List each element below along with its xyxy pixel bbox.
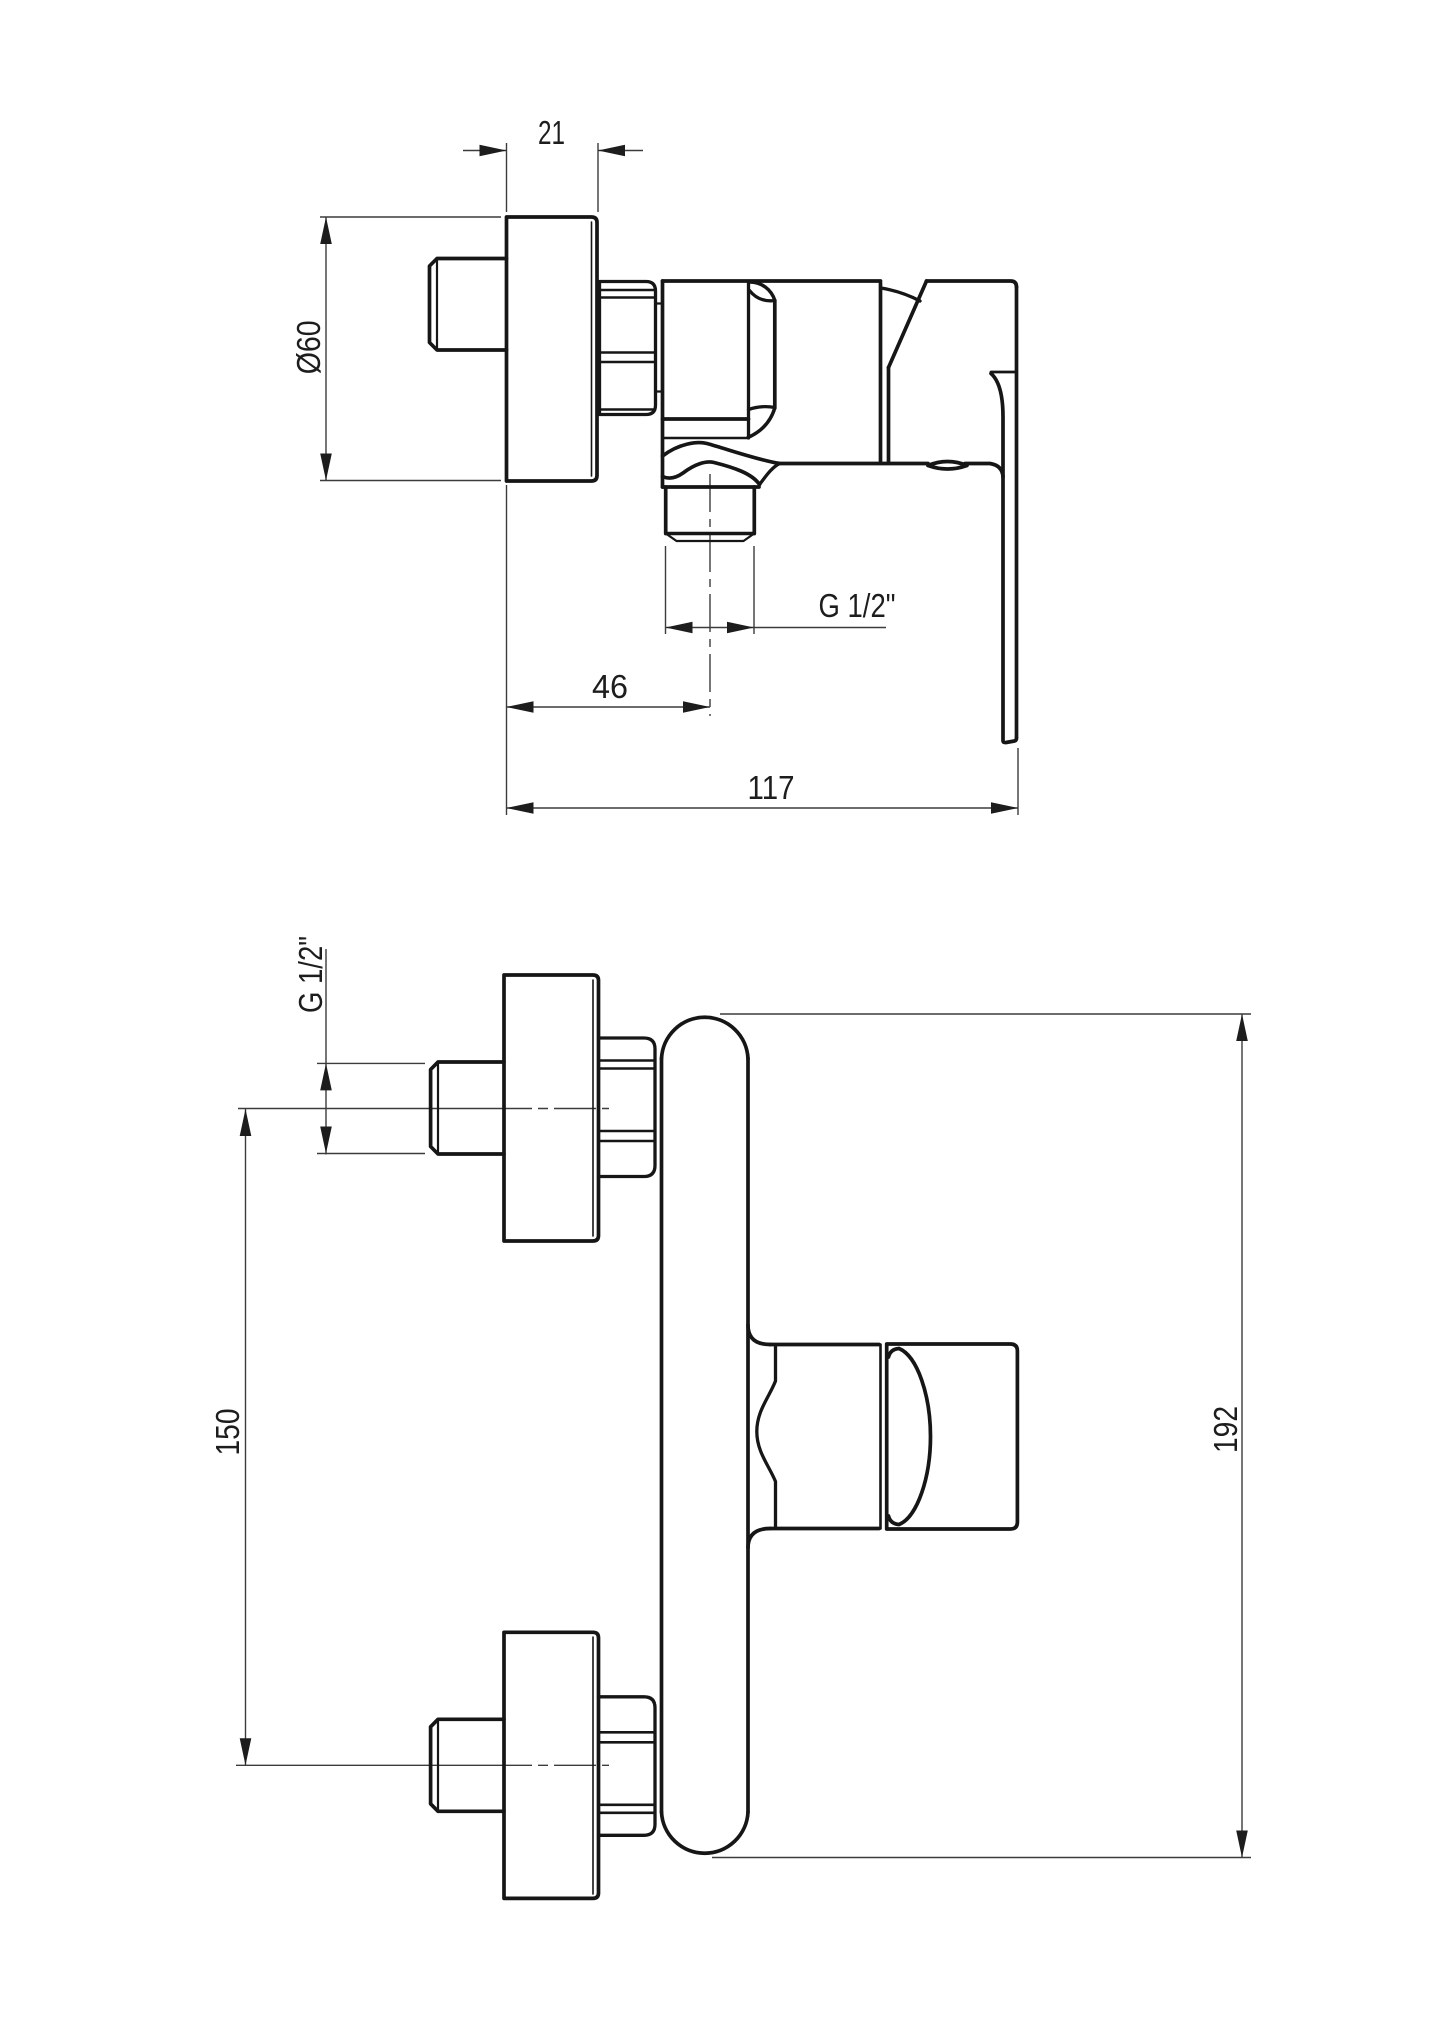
svg-text:21: 21 [538,114,565,151]
svg-text:46: 46 [592,668,628,705]
svg-text:192: 192 [1207,1406,1244,1453]
svg-text:G 1/2": G 1/2" [819,587,896,624]
svg-text:Ø60: Ø60 [290,320,327,374]
svg-text:G 1/2": G 1/2" [292,936,329,1013]
svg-text:150: 150 [209,1409,246,1456]
svg-text:117: 117 [748,769,795,806]
